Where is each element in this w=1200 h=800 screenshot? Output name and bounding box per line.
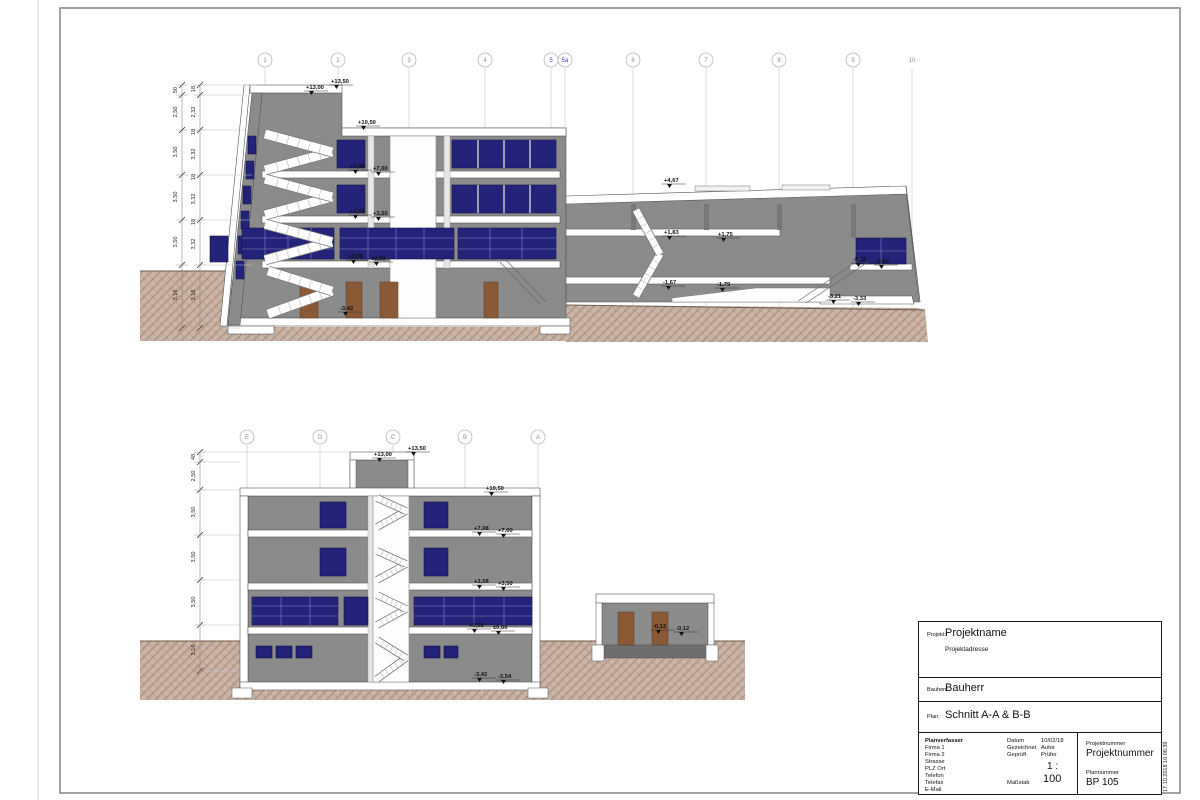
dimension-label: 18 [191,174,197,180]
grid-bubble-label: A [536,435,540,441]
elevation-label: -0,62 [876,259,889,265]
planverfasser-label: Planverfasser [925,738,963,745]
roof-skylight [782,185,830,190]
elevation-label: -3,54 [498,674,512,680]
elevation-label: +0,08 [348,254,363,260]
gezeichnet-value: Autor [1041,745,1055,752]
dimension-label: 3,50 [173,192,179,203]
elevation-label: -0,12 [676,626,689,632]
elevation-label: ±0,00 [371,256,385,262]
elevation-label: +3,50 [373,211,388,217]
firma2: Firma 2 [925,752,945,759]
elevation-label: +10,50 [358,120,376,126]
projekt-label: Projekt: [927,632,946,638]
elevation-label: +13,00 [374,452,392,458]
title-block-project-row: Projekt: Projektname Projektadresse [919,622,1161,677]
dimension-label: 18 [191,86,197,92]
door [618,612,634,645]
basement-slab [234,318,570,326]
geprueft-value: Prüfer [1041,752,1057,759]
project-name: Projektname [945,627,1007,639]
elevation-label: -3,33 [853,296,867,302]
datum-value: 10/02/18 [1041,738,1064,745]
strasse: Strasse [925,759,945,766]
dimension-label: 2,50 [173,107,179,118]
dimension-label: 2,32 [191,107,197,118]
roof-skylight [695,186,750,191]
elevation-label: +0,08 [469,623,484,629]
project-address: Projektadresse [945,646,988,653]
elevation-label: ±0,00 [493,625,507,631]
massstab-label: Maßstab [1007,780,1030,787]
grid-bubble-label: B [463,435,467,441]
roof-slab [250,85,342,93]
elevation-label: -1,67 [663,280,676,286]
elevation-label: +13,50 [408,446,426,452]
elevation-label: +7,00 [498,528,513,534]
dimension-label: 18 [191,129,197,135]
elevation-label: +3,58 [350,209,365,215]
elevation-label: +10,50 [486,486,504,492]
dimension-label: 3,32 [191,149,197,160]
roof-slab [596,594,714,603]
outer-wall [240,496,248,688]
dimension-label: 3,32 [191,194,197,205]
elevation-label: +3,50 [498,581,513,587]
plan-title: Schnitt A-A & B-B [945,709,1031,721]
wing-floor-slab [566,277,830,284]
grid-bubble-label: 10 [909,58,916,64]
outer-wall [532,496,540,688]
dimension-label: 50 [173,87,179,93]
client-name: Bauherr [945,682,984,694]
plot-timestamp: 17.10.2018 16:06:39 [1163,720,1169,792]
elevation-label: -0,12 [653,624,666,630]
plan-label: Plan: [927,714,940,720]
scale-prefix: 1 : [1047,761,1058,772]
grid-bubble-label: D [318,435,323,441]
title-block-number-cell: Projektnummer Projektnummer Plannummer B… [1077,733,1161,794]
entrance-panel [210,236,228,262]
geprueft-label: Geprüft [1007,752,1026,759]
title-block: Projekt: Projektname Projektadresse Bauh… [918,621,1162,795]
elevation-label: +13,50 [331,79,349,85]
elevation-label: -3,42 [474,672,487,678]
telefon: Telefon [925,773,944,780]
dimension-label: 48 [191,454,197,460]
title-block-plan-row: Plan: Schnitt A-A & B-B [919,701,1161,732]
projektnummer-label: Projektnummer [1086,741,1125,748]
grid-bubble-label: C [391,435,396,441]
elevation-label: +1,83 [664,230,679,236]
basement-slab [240,682,540,690]
grid-bubble-label: 5a [562,58,569,64]
dimension-label: 3,50 [173,237,179,248]
dimension-label: 3,50 [173,147,179,158]
grid-bubble-label: E [245,435,249,441]
dimension-label: 3,50 [191,552,197,563]
roof-slab [342,128,566,136]
firma1: Firma 1 [925,745,945,752]
dimension-label: 18 [191,219,197,225]
email: E-Mail [925,787,941,794]
elevation-label: -3,21 [828,294,842,300]
dimension-label: 2,50 [191,471,197,482]
elevation-label: +13,00 [306,85,324,91]
dimension-label: 3,50 [191,507,197,518]
elevation-label: +7,08 [350,164,365,170]
gezeichnet-label: Gezeichnet [1007,745,1036,752]
dimension-label: 3,16 [191,645,197,656]
plannummer-value: BP 105 [1086,777,1119,788]
elevation-label: -3,42 [340,306,353,312]
elevation-label: +4,67 [664,178,679,184]
elevation-label: +7,08 [474,526,489,532]
title-block-meta-row: Planverfasser Firma 1 Firma 2 Strasse PL… [919,732,1161,794]
elevation-label: +7,00 [373,166,388,172]
elevation-label: -1,79 [717,282,731,288]
dimension-label: 3,16 [173,290,179,301]
elevation-label: +3,58 [474,579,489,585]
title-block-client-row: Bauherr: Bauherr [919,677,1161,701]
elevation-label: -0,18 [853,257,867,263]
projektnummer-value: Projektnummer [1086,748,1154,759]
section-a-dimensions: 502,503,503,503,503,16182,32183,32183,32… [173,86,197,301]
elevation-marker-icon [667,184,672,188]
datum-label: Datum [1007,738,1024,745]
dimension-label: 3,16 [191,290,197,301]
scale-value: 100 [1043,773,1061,785]
telefax: Telefax [925,780,943,787]
dimension-label: 3,50 [191,597,197,608]
plannummer-label: Plannummer [1086,770,1119,777]
plz-ort: PLZ Ort [925,766,945,773]
dimension-label: 3,32 [191,239,197,250]
elevation-label: +1,75 [718,232,733,238]
